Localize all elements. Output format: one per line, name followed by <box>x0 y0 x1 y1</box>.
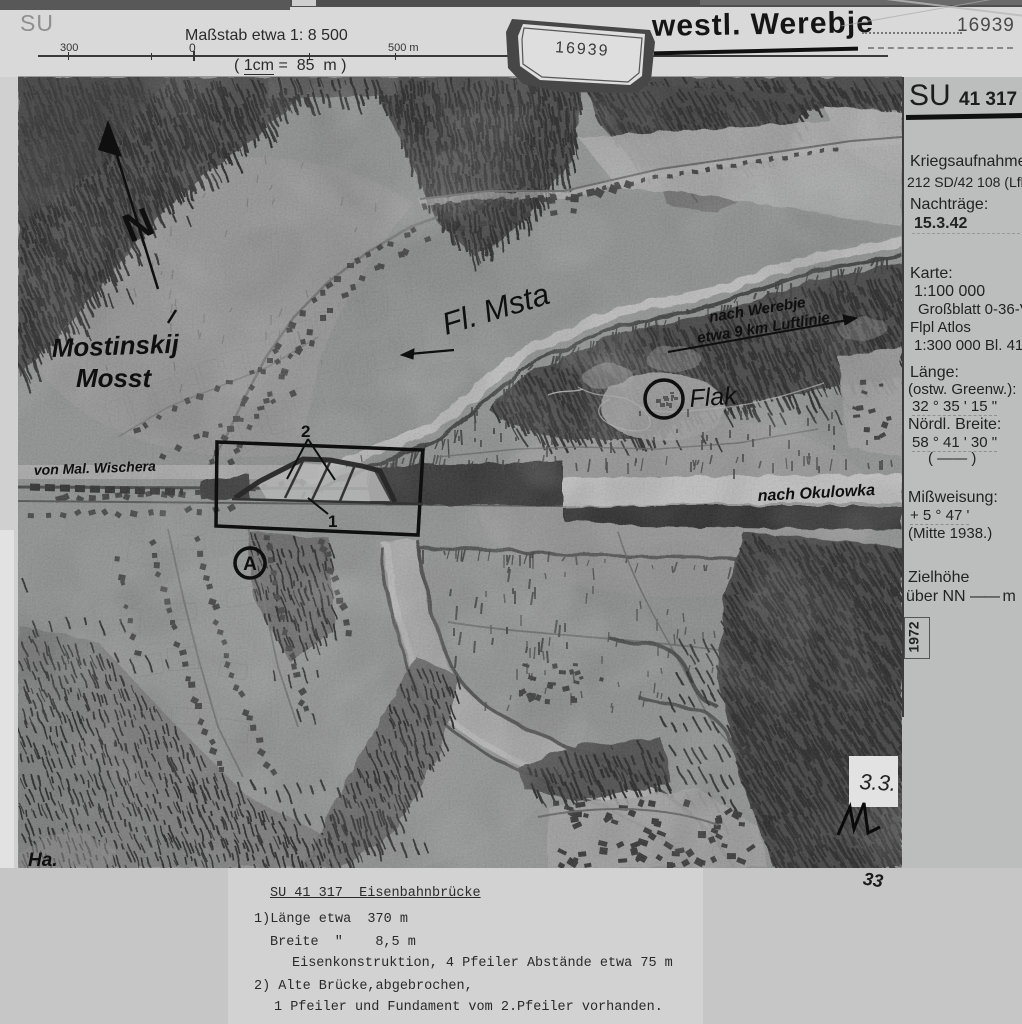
svg-text:Flak: Flak <box>688 382 739 413</box>
svg-text:3.3.: 3.3. <box>859 769 897 796</box>
svg-text:Mosst: Mosst <box>76 363 152 393</box>
svg-text:2: 2 <box>301 422 310 441</box>
svg-text:Ha.: Ha. <box>28 850 58 868</box>
svg-text:Mostinskij: Mostinskij <box>51 329 180 363</box>
svg-text:A: A <box>243 554 257 575</box>
svg-text:1: 1 <box>328 512 337 531</box>
